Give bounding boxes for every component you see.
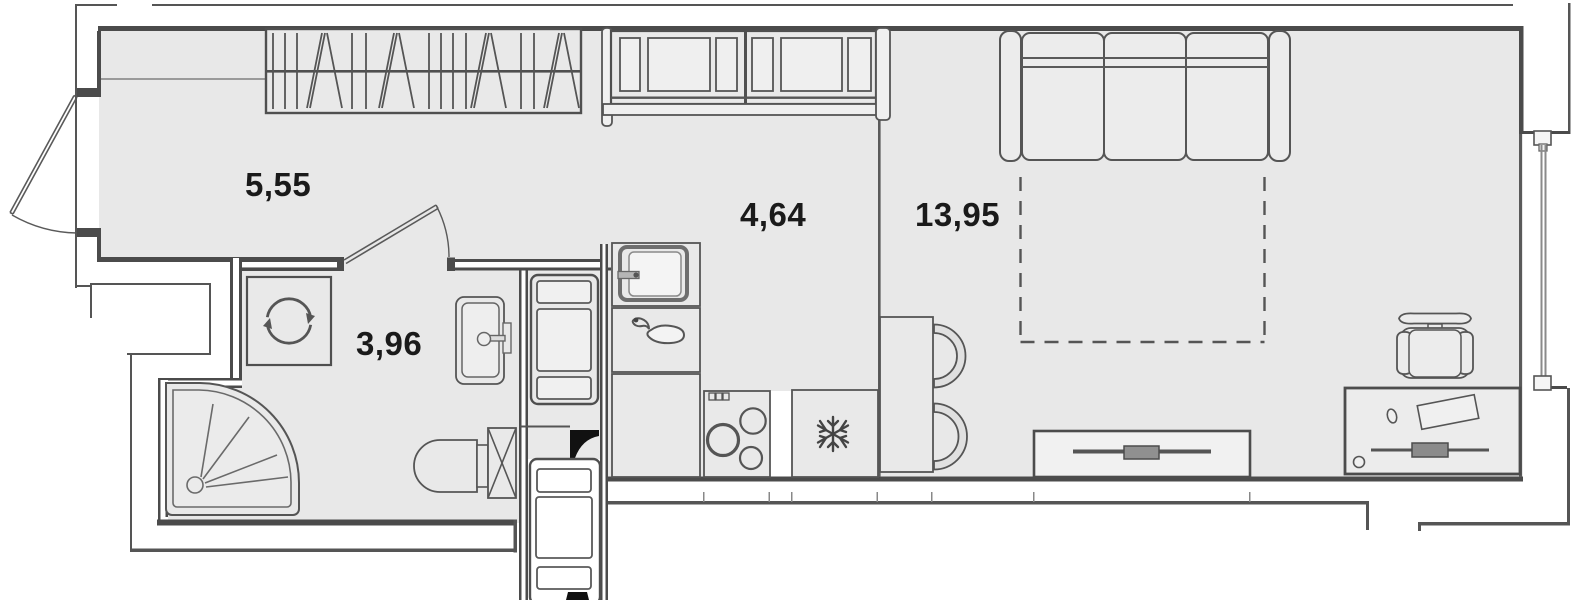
svg-text:5,55: 5,55 <box>245 166 311 203</box>
svg-text:13,95: 13,95 <box>915 196 1000 233</box>
svg-text:4,64: 4,64 <box>740 196 806 233</box>
svg-text:3,96: 3,96 <box>356 325 422 362</box>
